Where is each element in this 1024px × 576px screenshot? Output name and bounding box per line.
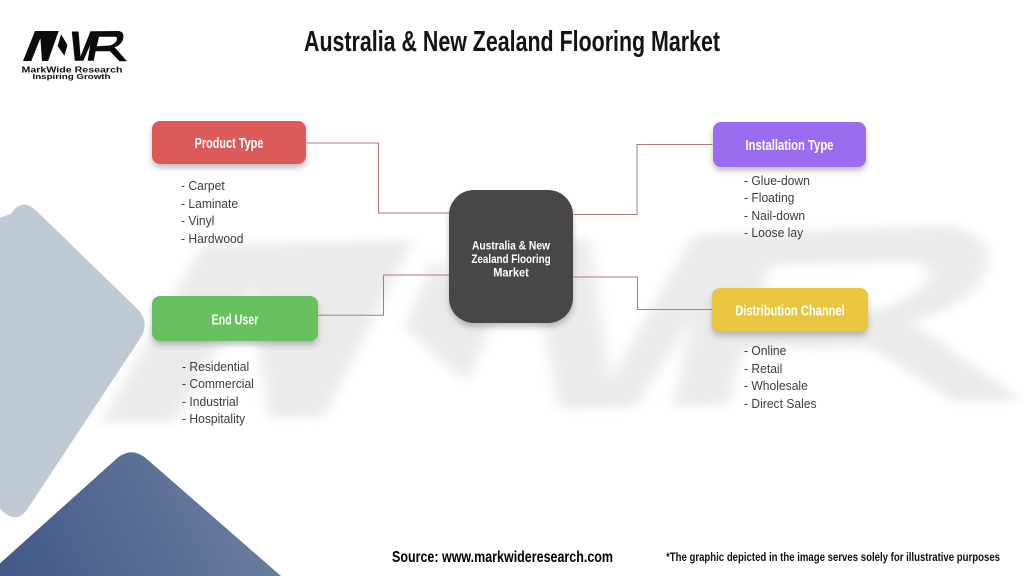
svg-text:*The graphic depicted in the i: *The graphic depicted in the image serve… xyxy=(666,550,1000,564)
svg-text:Market: Market xyxy=(493,268,529,280)
svg-text:End User: End User xyxy=(212,312,259,328)
svg-text:Australia & New: Australia & New xyxy=(472,241,550,253)
svg-text:Installation Type: Installation Type xyxy=(746,138,834,154)
svg-text:Source: www.markwideresearch.c: Source: www.markwideresearch.com xyxy=(392,549,613,566)
svg-text:Zealand Flooring: Zealand Flooring xyxy=(471,254,550,266)
svg-text:Distribution Channel: Distribution Channel xyxy=(735,304,845,320)
svg-text:Australia & New Zealand Floori: Australia & New Zealand Flooring Market xyxy=(304,26,720,58)
svg-text:Product Type: Product Type xyxy=(195,136,264,152)
